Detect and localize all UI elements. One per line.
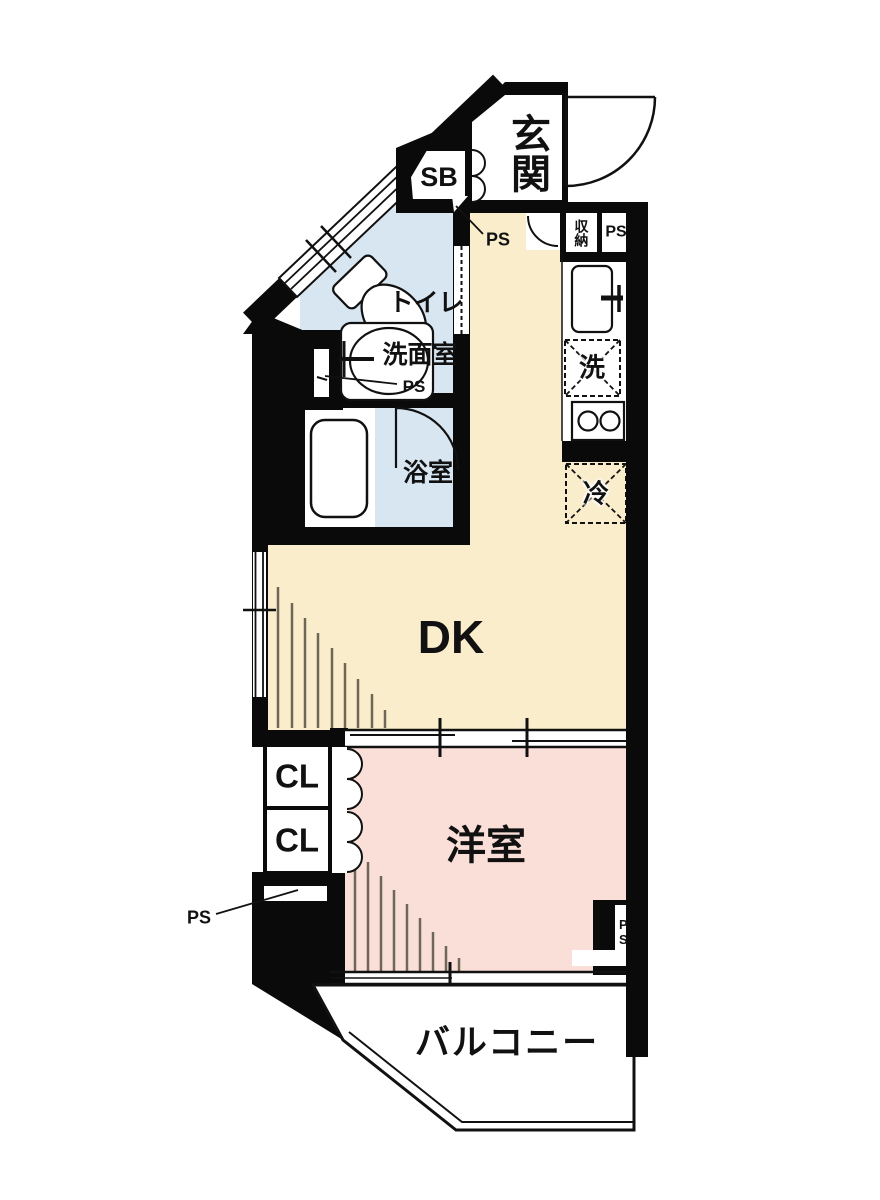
floor-plan: 玄関 SB トイレ 洗面室 浴室 DK 洋室 CL CL バルコニー 収納 洗 …	[0, 0, 880, 1200]
ps-shaft-washroom	[314, 349, 329, 397]
balcony-outline	[313, 985, 634, 1130]
closet-2-box	[265, 808, 330, 873]
floor-plan-canvas	[0, 0, 880, 1200]
stove-icon	[572, 402, 624, 440]
washer-space-box	[565, 340, 620, 396]
ps-shaft-left	[264, 886, 327, 901]
entrance-door	[566, 95, 655, 186]
closet-1-box	[265, 745, 330, 808]
bathtub-icon	[311, 420, 367, 517]
closets	[265, 745, 362, 873]
vanity-sink-icon	[339, 323, 433, 400]
storage-box	[566, 213, 597, 252]
